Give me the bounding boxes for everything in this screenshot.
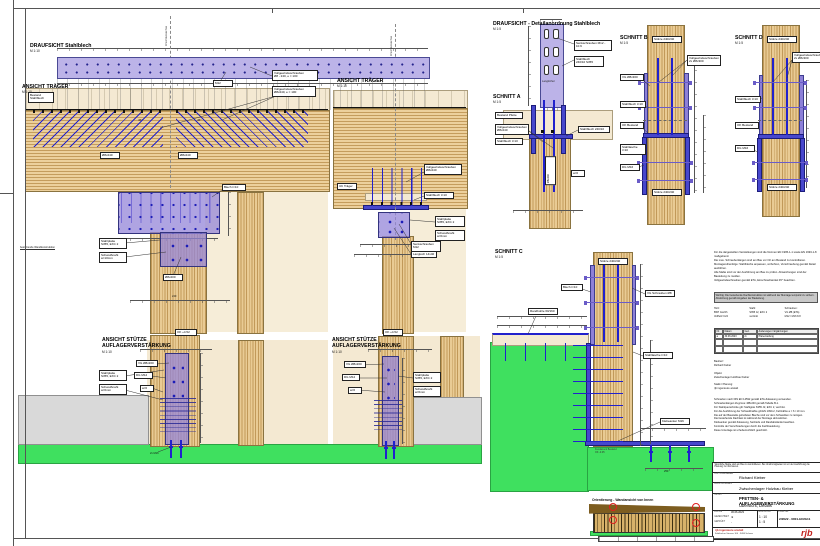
member-tag: Stütze 240/240 [598,258,628,265]
callout-box: OK Bestand [735,122,759,129]
timber-column [382,236,414,334]
dimension-value: 250 [664,470,668,473]
callout-box: Blech t=10 [561,284,583,291]
callout-box: Stahlblech t=10 [735,96,761,103]
side-plate [685,137,690,195]
drawing-sheet: DRAUFSICHT Stahlblech M 1:10 Anschlussac… [0,0,820,546]
callout-box: Randbohle 60/160 [528,308,558,315]
revision-cell-empty [757,346,818,353]
view-title-stuetze-left: ANSICHT STÜTZE AUFLAGERVERSTÄRKUNG M 1:1… [102,330,171,360]
bearing-plate [643,133,689,138]
bolt-row [756,82,804,83]
callout-box: DG M16 [735,145,755,152]
view-title-text: ANSICHT TRÄGER [337,78,383,84]
callout-box: Stahlblech 240/10 S355 [574,56,604,67]
dimension-line [497,316,587,319]
beam-top-edge [333,107,466,108]
wall-gray [18,395,149,445]
member-tag: Stütze 240/240 [652,36,682,43]
screw-rod [603,258,605,342]
location-marker [609,503,617,511]
revision-cell-empty [723,339,743,346]
dimension-line [640,428,706,431]
content-value-2: Übersicht, Details [739,503,772,508]
drawn-value: rk [731,516,733,519]
callout-box: a=6 [348,387,362,394]
fold-mark [523,8,524,13]
callout-box: VG Ø8x300 [620,74,644,81]
callout-box: Vollgewindeschrauben Ø8x240 [495,124,529,135]
company-address: Feldkircher Strasse 100 · 9494 Schaan [715,533,753,535]
drawn-label: GEZEICHNET [714,516,729,518]
view-title-text: DRAUFSICHT Stahlblech [30,43,91,49]
meta-scale-cell: MASSSTAB 1 : 10 1 : 5 [757,510,778,527]
angle-label: 45° [138,118,143,122]
anchor-label: 2x M16 [150,452,159,455]
callout-box: Ø8x240 [100,152,120,159]
screw-rod [525,343,526,361]
fold-mark [272,8,273,13]
callout-box: Ø8x240 [545,156,556,185]
callout-box: Stahlblech t=10 [620,101,646,108]
callout-box: a=6 [571,170,585,177]
callout-box: Schweißnaht a=10mm [99,252,127,263]
anchor-bolt [669,445,671,462]
view-scale: M 1:5 [495,255,523,259]
location-marker [609,516,617,524]
screw-array [372,168,422,206]
anchor-bolt [170,440,172,458]
notes-top: Für die dargestellten Verstärkungen sind… [714,251,817,283]
screw-rod [786,58,788,135]
notes-col-wood: Holz: BSH GL24h Vollholz C24 [714,307,746,318]
callout-box: DG M16 [620,164,640,171]
hidden-line [758,120,802,121]
bolt-row [587,327,636,328]
side-plate [561,105,566,154]
callout-box: Bestand Stahlblech [28,92,54,103]
view-title-text: ANSICHT STÜTZE AUFLAGERVERSTÄRKUNG [102,337,171,350]
screw-side-view [374,400,402,432]
dimension-line [130,300,230,303]
foundation-label: Fundament Bestand OK -0.05 [595,448,617,454]
member-tag: Stütze 240/240 [652,189,682,196]
bolt-row [755,179,805,180]
timber-column [237,192,264,334]
screw-array-horizontal [573,345,623,442]
callout-box: Stahlplatte S355, EXC 2 [413,372,441,383]
slot-hole [544,47,550,57]
callout-box: a=6 [140,385,154,392]
checked-value: - [731,521,732,524]
callout-box: Stahlblech t=10 [424,192,454,199]
washer-row [176,110,308,112]
steel-plate [118,192,220,234]
bolt-row [756,107,804,108]
bolt-row [640,180,690,181]
location-marker [692,519,700,527]
callout-box: Klebeanker M16 [660,418,690,425]
dimension-line [694,58,697,193]
ground [18,444,482,464]
callout-box: VG Ø8x200 [136,360,158,367]
scale-value-2: 1 : 5 [759,520,765,524]
dimension-line [57,48,428,51]
axis-label: Anschlussachse [389,26,393,56]
view-scale: M 1:10 [332,350,401,354]
revision-table: Nr. Datum Gez. Änderungen / Ergänzungen … [714,328,819,354]
callout-box: Senkschrauben M12 - 10.9 [574,40,612,51]
anchor-bolt [180,440,182,458]
view-title-schnitt-a: SCHNITT A M 1:5 [493,87,520,111]
disclaimer-text: Sämtliche Maße sind am Bau zu kontrollie… [715,464,818,470]
client-value: Richard Kieber [739,475,765,480]
bolt-dots [384,360,395,400]
wall-area [205,192,328,332]
timber-column [440,336,464,399]
view-title-traeger-mid: ANSICHT TRÄGER M 1:10 [337,71,383,95]
screw-side-view [160,398,196,432]
dimension-line [200,353,203,443]
dimension-line [497,325,587,328]
fold-mark [0,193,13,194]
callout-box: Vollgewindeschrauben Ø8x240 [424,164,462,175]
callout-box: Schweißnaht a=6mm [413,386,441,397]
revision-cell-empty [743,339,757,346]
view-scale: M 1:5 [493,100,520,104]
steel-plate-edge [529,134,573,139]
callout-box: Schweißnaht a=6mm [435,230,465,241]
screw-rod [545,343,546,361]
frame-top [13,8,820,9]
member-tag: Stütze 240/240 [767,184,797,191]
callout-box: Stahllasche t=10 [643,352,673,359]
plate-inner-label: Langlöcher [542,80,555,83]
revision-cell-empty [715,346,723,353]
notes-col-steel: Stahl: S355 J2, EXC 2 verzinkt [749,307,781,318]
screw-rod [617,258,619,342]
notes-columns: Holz: BSH GL24h Vollholz C24 Stahl: S355… [714,307,817,318]
level-tag: OK +4.52 [175,329,197,336]
revision-cell-empty [743,346,757,353]
screw-rod [505,343,506,361]
callout-box: Stahlblech 240/10 [578,126,610,133]
dimension-line [402,358,405,444]
view-scale: M 1:5 [735,41,763,45]
orientation-title: Orientierung - Wandansicht von Innen [592,498,653,502]
callout-box: DG M12 [134,372,153,379]
dimension-line [528,26,531,106]
date-label: DATUM [714,511,722,513]
bolt-row [641,82,689,83]
revision-cell-empty [723,346,743,353]
view-scale: M 1:10 [30,49,91,53]
meta-plan-cell: PLAN-NR. 2/2622 - 0001-HO/G11 [777,510,820,527]
project-label: BAUVORHABEN [714,483,732,485]
dimension-value: 240 [172,295,176,298]
callout-box: OK Bestand [620,122,644,129]
callout-box: Vollgewindeschrauben 2x Ø8x300 [687,55,721,66]
screw-group-right [176,111,308,147]
checked-label: GEPRÜFT [714,521,725,523]
screw-group-left [33,111,163,147]
screw-rod [657,58,659,135]
view-title-text: SCHNITT D [735,35,763,41]
date-value: 30.06.2023 [731,511,744,514]
timber-column [238,340,264,446]
level-tag: UK Träger [337,183,357,190]
company-name: rjb ingenieure anstalt [715,528,743,532]
callout-box: Vollgewindeschrauben 2x Ø8x300 [792,52,820,63]
callout-box: VG Ø8x200 [344,361,366,368]
side-plate [799,75,804,137]
hidden-line [643,120,687,121]
anchor-bolt [393,441,395,459]
level-tag: OK +4.52 [383,329,403,336]
bolt-row [587,277,636,278]
scale-value-1: 1 : 10 [759,515,767,519]
dimension-line [645,468,703,471]
side-plate [759,75,764,137]
title-block: Sämtliche Maße sind am Bau zu kontrollie… [712,462,820,540]
view-title-schnitt-d: SCHNITT D M 1:5 [735,28,763,52]
bolt-row [755,162,805,163]
dimension-line [703,115,706,193]
dimension-line [806,80,809,188]
member-tag: Stütze 240/240 [767,36,797,43]
bolt-dots [168,358,184,398]
callout-box: DG M12 [342,374,360,381]
center-axis [170,16,171,188]
notes-mid: Bauherr: Richard Kieber Objekt: Zwischen… [714,360,817,391]
side-plate [757,138,762,192]
revision-cell-empty [715,339,723,346]
slot-hole [553,65,559,75]
frame-left-outer [13,0,14,546]
view-title-text: ANSICHT TRÄGER [22,84,68,90]
notes-highlight: Wichtig: Die bestehende Dachkonstruktion… [714,292,818,303]
callout-box: VG Schrauben Ø8 [645,290,675,297]
anchor-bolt [385,441,387,459]
dimension-line [228,192,231,236]
view-title-schnitt-b: SCHNITT B M 1:5 [620,28,648,52]
content-label: INHALT [714,494,722,496]
view-title-detail: DRAUFSICHT - Detailanordnung Stahlblech … [493,14,600,38]
bolt-row [640,162,690,163]
plan-number-label: PLAN-NR. [778,511,789,513]
bolt-row [587,302,636,303]
slot-hole [553,47,559,57]
callout-box: Stahlplatte S355, EXC 2 [99,370,127,381]
view-scale: M 1:10 [337,84,383,88]
scale-label: MASSSTAB [758,511,770,513]
side-plate [800,138,805,192]
notes-col-screws: Schrauben: VG Ø8 (ETA) M12 / M16 8.8 [785,307,817,318]
washer-row [33,110,163,112]
callout-box: Stahlblech t=10 [495,138,523,145]
callout-box: Schweißnaht a=6mm [99,384,127,395]
title-block-content-row: INHALT PFETTEN- & AUFLAGERVERSTÄRKUNG Üb… [713,493,820,511]
view-title-text: ANSICHT STÜTZE AUFLAGERVERSTÄRKUNG [332,337,401,350]
callout-box: Vollgewindeschrauben Ø8 - 240, e = 100 [272,70,318,81]
title-block-meta-row: DATUM 30.06.2023 GEZEICHNET rk GEPRÜFT -… [713,510,820,528]
view-title-draufsicht: DRAUFSICHT Stahlblech M 1:10 [30,36,91,60]
view-scale: M 1:5 [493,27,600,31]
company-logo: rjb [801,528,813,538]
plan-number-value: 2/2622 - 0001-HO/G11 [779,517,810,521]
bolt-row [641,107,689,108]
callout-box: Ø8x200 [163,274,183,281]
bearing-plate [758,134,804,139]
screw-rod [565,343,566,361]
callout-box: Stahllasche t=10 [620,144,646,155]
callout-box: Vollgewindeschrauben Ø8x240, e = 100 [272,86,316,97]
view-scale: M 1:5 [620,41,648,45]
steel-plate [378,212,410,238]
client-label: AUFTRAGGEBER [714,473,733,475]
slot-hole [544,65,550,75]
view-title-text: DRAUFSICHT - Detailanordnung Stahlblech [493,21,600,27]
view-scale: M 1:10 [102,350,171,354]
angle-label: 45° [197,118,202,122]
view-title-text: SCHNITT B [620,35,648,41]
scale-bar [598,536,714,542]
washer-row [371,202,423,205]
view-title-text: SCHNITT C [495,249,523,255]
project-value: Zwischenlager Holzbau Kieber [739,486,793,491]
anchor-bolt [650,445,652,462]
side-plate [531,105,536,154]
wall-gray [412,397,482,445]
callout-box: M12 [213,80,233,87]
screw-rod [671,58,673,135]
callout-box: Ø8x240 [178,152,198,159]
washer [541,130,544,133]
meta-dates-cell: DATUM 30.06.2023 GEZEICHNET rk GEPRÜFT - [713,510,758,527]
frame-left-inner [25,8,26,538]
view-title-schnitt-c: SCHNITT C M 1:5 [495,242,523,266]
steel-plate-column [160,232,207,267]
revision-cell-empty [757,339,818,346]
callout-box: Stahlplatte S355, EXC 2 [99,238,127,249]
washer [551,130,554,133]
location-marker [692,503,700,511]
dimension-line [513,210,583,213]
view-title-text: SCHNITT A [493,94,520,100]
screw-rod [772,58,774,135]
callout-box: Langloch 14x40 [411,251,437,258]
notes-bottom: Schrauben nach DIN EN 14592 gemäß ETA-Zu… [714,398,817,433]
callout-box: Blech t=10 [222,184,246,191]
callout-box: Stahlplatte S355, EXC 2 [435,216,465,227]
anchor-bolt [688,445,690,462]
axis-label: Anschlussachse [164,16,168,46]
callout-box: Bestand Pfette [495,112,523,119]
